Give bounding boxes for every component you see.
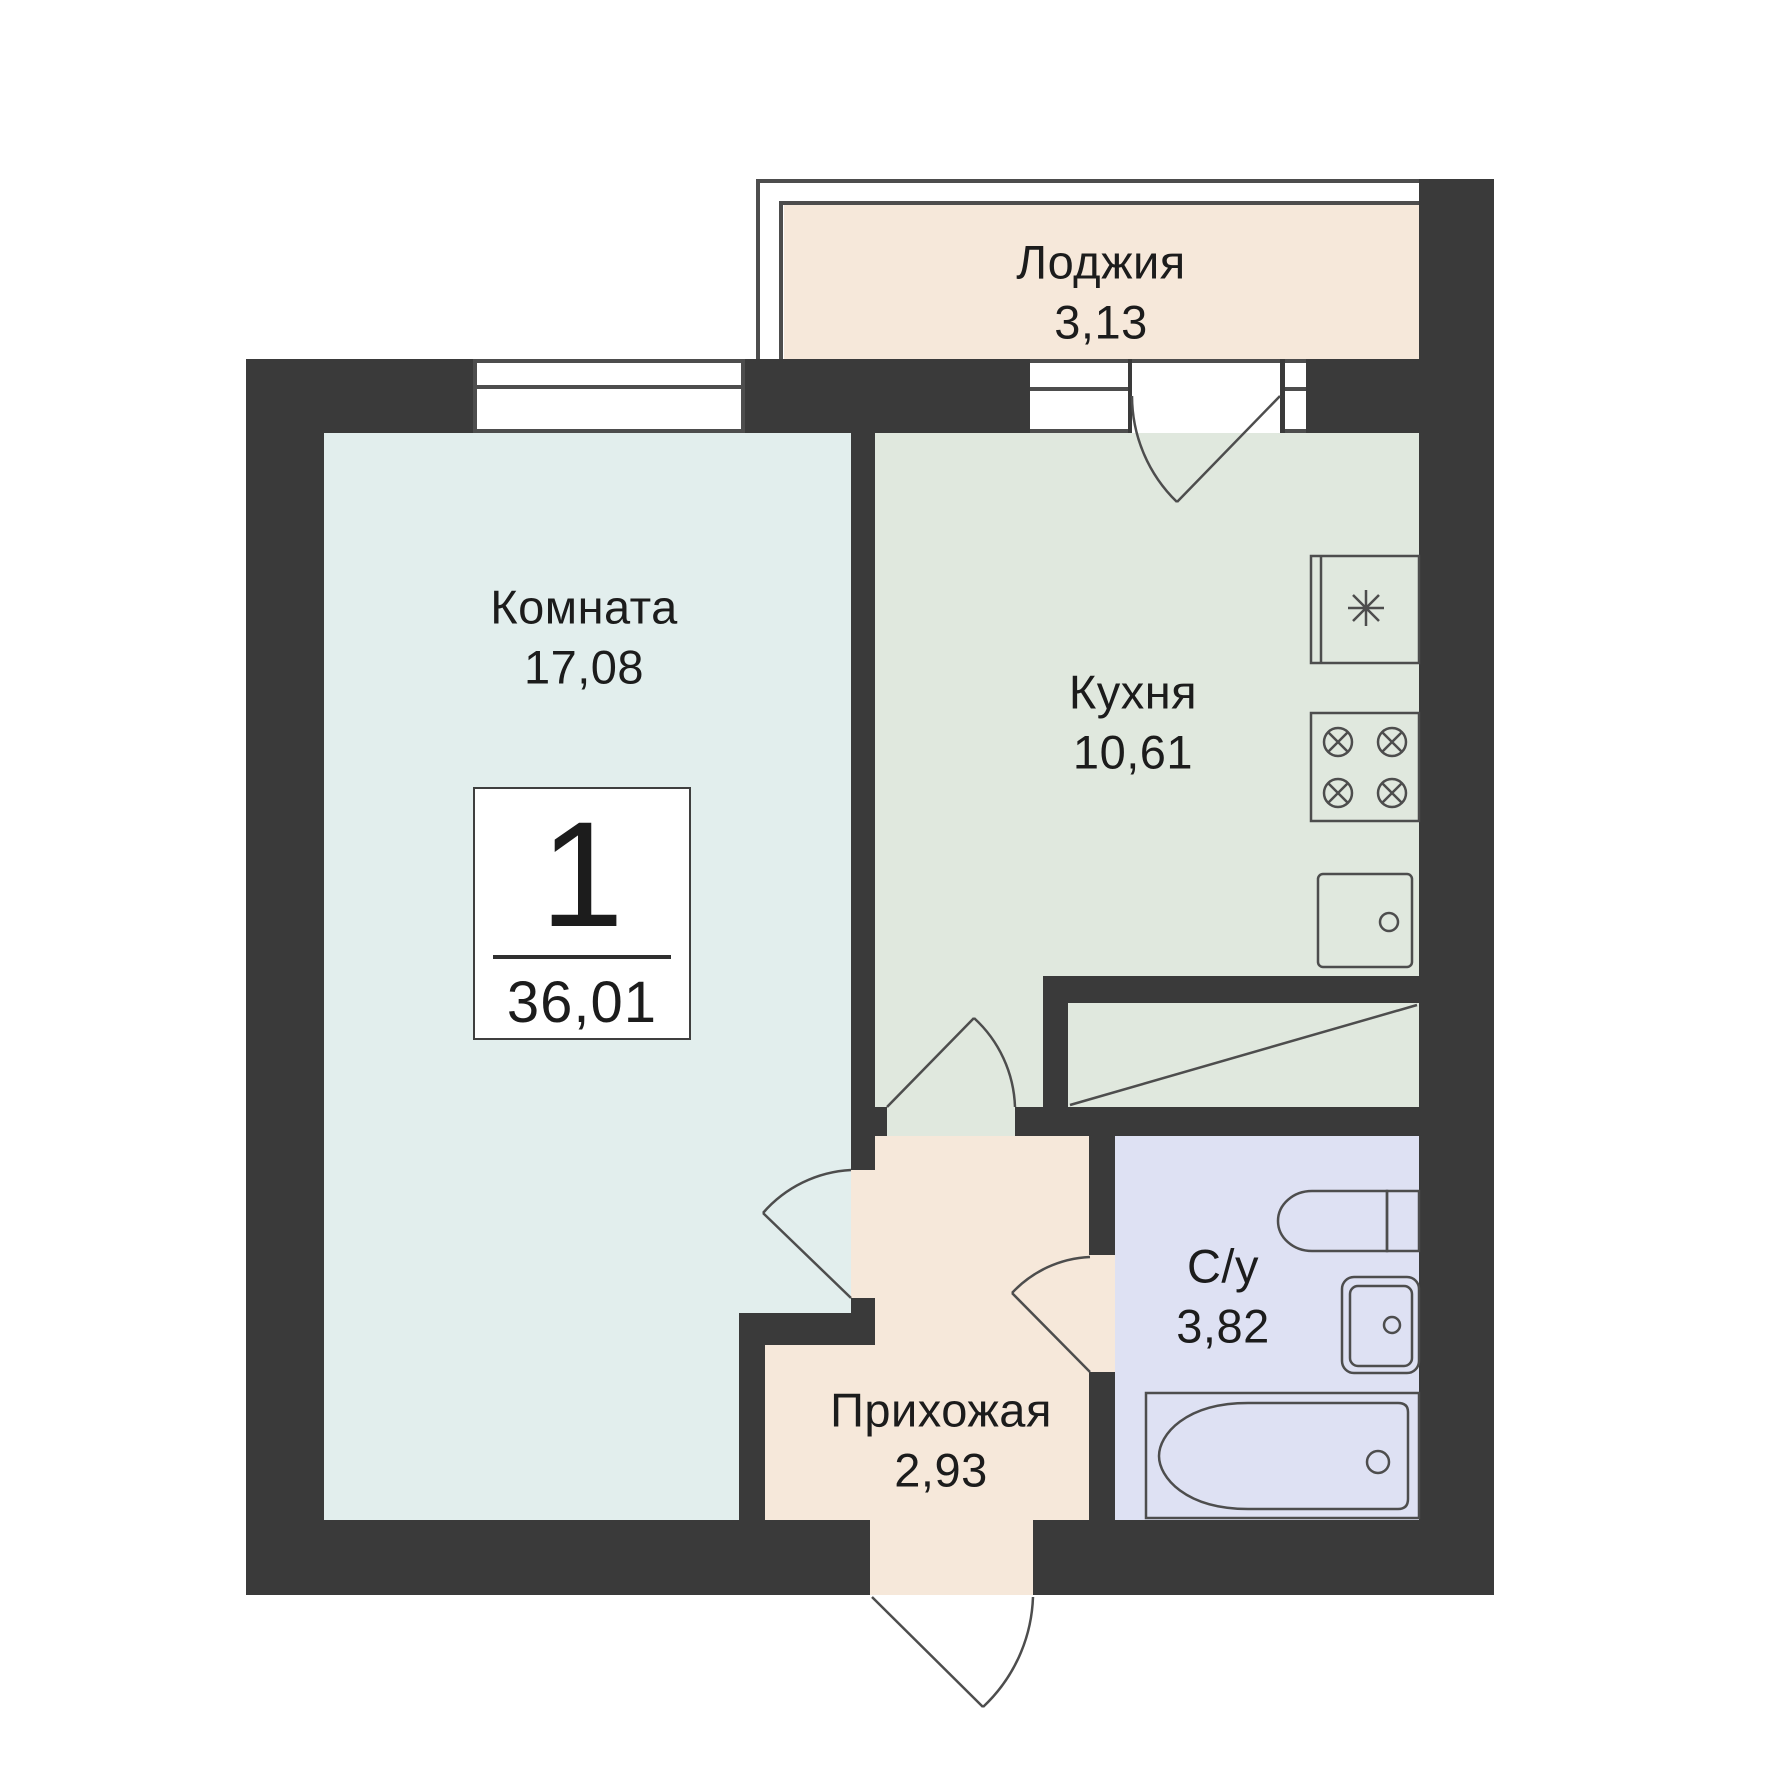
window-frame-living-room — [473, 361, 745, 431]
room-area: 2,93 — [830, 1440, 1052, 1500]
door-swing-living-room — [763, 1170, 851, 1298]
window-frame-kitchen — [1030, 361, 1128, 431]
room-label-kitchen: Кухня 10,61 — [1069, 662, 1197, 781]
door-swing-kitchen — [887, 1018, 1015, 1107]
badge-divider — [493, 955, 671, 959]
bathroom-sink-icon — [1342, 1277, 1419, 1373]
room-area: 3,82 — [1176, 1296, 1269, 1356]
apartment-badge: 1 36,01 — [473, 787, 691, 1040]
window-frame-kitchen-small — [1285, 361, 1306, 431]
room-count: 1 — [540, 799, 623, 949]
toilet-icon — [1278, 1191, 1419, 1251]
room-name: Прихожая — [830, 1383, 1052, 1436]
room-label-hallway: Прихожая 2,93 — [830, 1380, 1052, 1499]
room-label-bathroom: С/у 3,82 — [1176, 1236, 1269, 1355]
plan-linework — [0, 0, 1772, 1772]
room-area: 17,08 — [490, 637, 678, 697]
total-area: 36,01 — [507, 969, 657, 1036]
closet-diagonal-line — [1070, 1005, 1417, 1105]
room-area: 10,61 — [1069, 722, 1197, 782]
door-swing-balcony — [1132, 396, 1280, 502]
room-name: Комната — [490, 580, 678, 633]
room-name: Лоджия — [1016, 235, 1186, 288]
fridge-icon — [1311, 556, 1419, 663]
stove-icon — [1311, 713, 1419, 821]
room-label-living-room: Комната 17,08 — [490, 577, 678, 696]
bathtub-icon — [1146, 1393, 1419, 1518]
room-name: С/у — [1187, 1239, 1259, 1292]
door-swing-bathroom — [1012, 1257, 1090, 1372]
room-label-loggia: Лоджия 3,13 — [1016, 232, 1186, 351]
door-swing-entrance — [872, 1597, 1033, 1707]
floor-plan: Лоджия 3,13 Комната 17,08 Кухня 10,61 С/… — [0, 0, 1772, 1772]
room-name: Кухня — [1069, 665, 1197, 718]
kitchen-sink-icon — [1318, 874, 1412, 967]
room-area: 3,13 — [1016, 292, 1186, 352]
